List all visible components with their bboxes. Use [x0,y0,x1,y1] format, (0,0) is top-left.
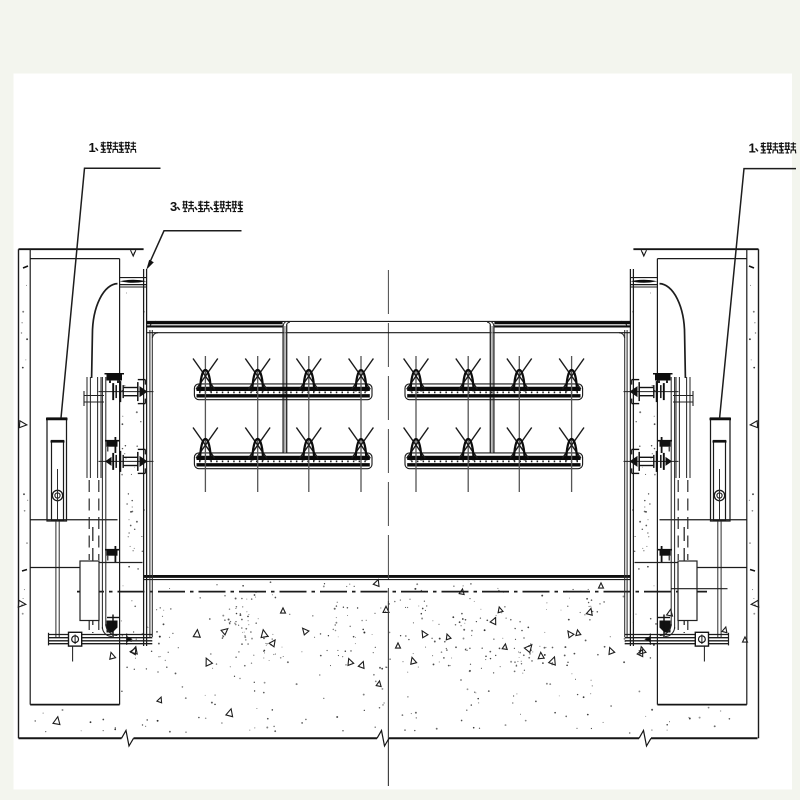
svg-text:1: 1 [89,140,96,155]
svg-text:3: 3 [170,199,177,214]
svg-text:1: 1 [749,141,756,156]
